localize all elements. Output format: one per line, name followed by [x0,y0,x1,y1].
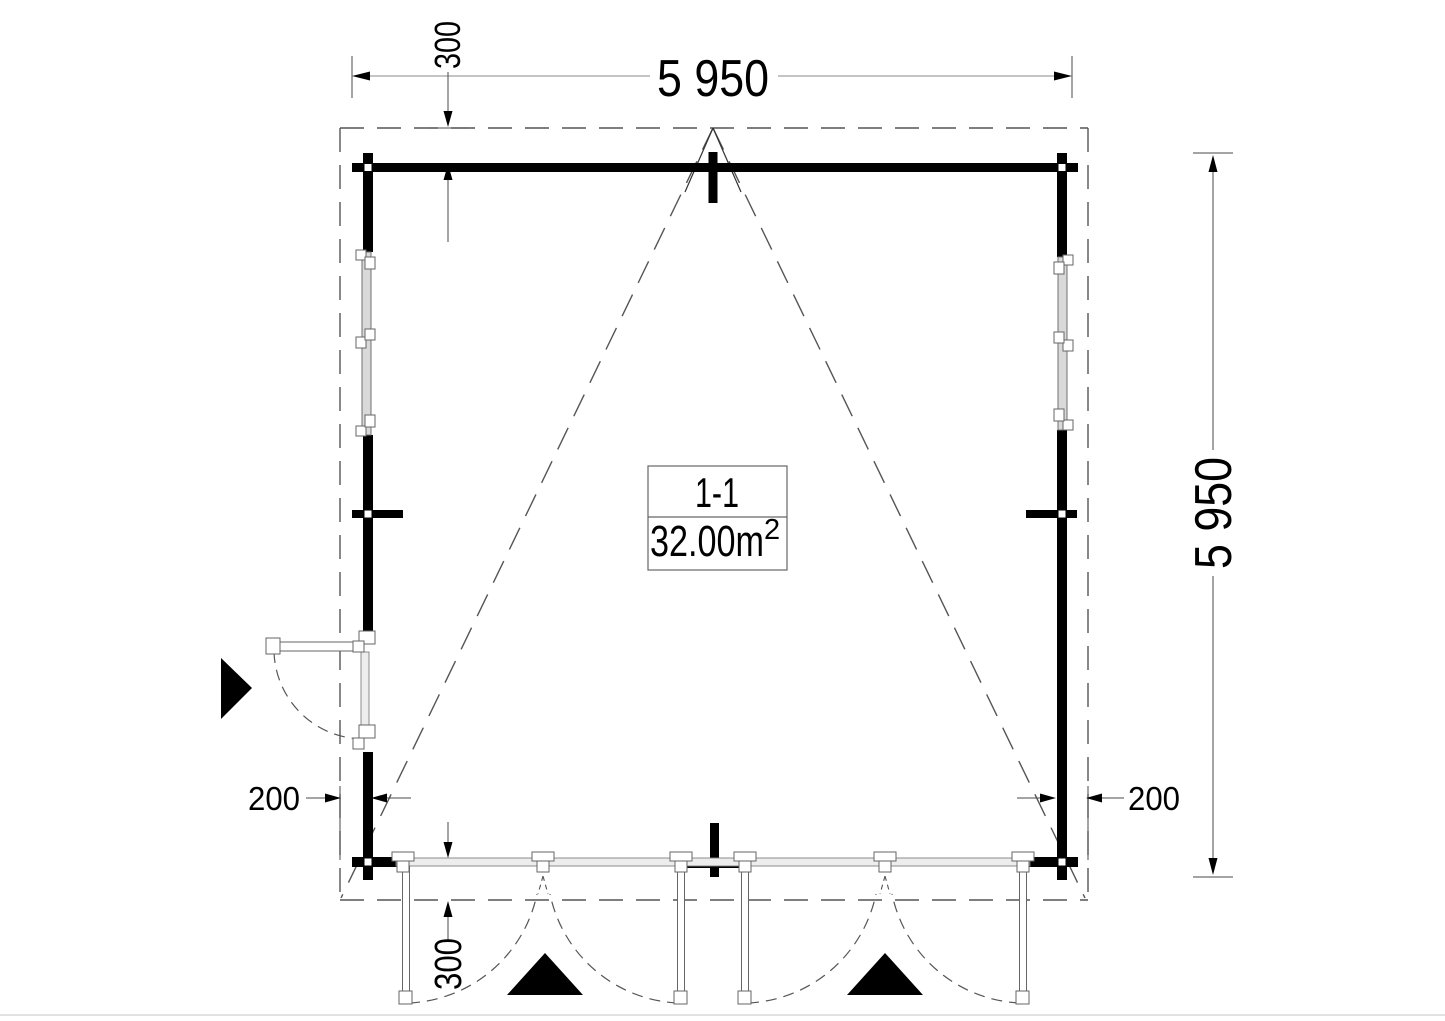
corner-notch-bottom-left [365,859,372,866]
door-closed-tip-mark [538,876,548,894]
dim-arrow [444,842,453,858]
door-leaf [678,866,685,993]
wall-left-middle [363,435,373,632]
dim-arrow [371,794,387,803]
dim-overhang-bottom: 300 [428,822,470,990]
dim-overhang-left: 200 [248,780,411,860]
corner-notch-bottom-right [1059,859,1066,866]
dim-overhang-left-label: 200 [248,780,300,817]
dim-overall-depth: 5 950 [1185,153,1243,877]
door-hinge-block [397,861,409,872]
entrance-arrow-bottom-right [847,953,923,995]
door-leaf-end-cap [399,991,412,1004]
side-door-jamb-block [359,725,375,738]
dim-overall-width-label: 5 950 [657,50,769,108]
side-door-leaf-end-cap [266,638,280,654]
door-hinge-block [739,861,751,872]
dim-arrow [444,901,453,917]
dim-arrow [1209,858,1218,875]
corner-notch-top-left [365,164,372,171]
door-threshold [396,858,1030,866]
door-hinge-block [532,852,554,861]
ridge-post-mark-top [709,152,718,203]
door-leaf-end-cap [674,991,687,1004]
door-hinge-block [1017,861,1029,872]
window-hinge-block [365,257,375,269]
entrance-arrow-bottom-left [507,953,583,995]
door-hinge-block [1012,852,1034,861]
side-door-opening [361,652,369,725]
dim-overall-depth-label: 5 950 [1185,457,1243,569]
joint-notch-right [1059,511,1066,518]
dim-arrow [1040,794,1056,803]
dim-arrow [1209,155,1218,172]
dim-overhang-bottom-label: 300 [428,938,470,990]
window-hinge-block [1054,409,1064,421]
corner-notch-top-right [1059,164,1066,171]
area-exponent: 2 [764,514,780,546]
window-hinge-block [1054,332,1064,343]
window-hinge-block [365,329,375,340]
dim-overhang-top-label: 300 [427,21,468,69]
door-leaf-end-cap [738,991,751,1004]
window-right [1054,255,1073,430]
wall-right-lower [1057,430,1067,880]
door-hinge-block [675,861,687,872]
floor-plan-drawing: 5 950 5 950 300 300 [0,0,1445,1021]
side-door-jamb-block [353,641,364,652]
section-area-label: 1-1 32.00m 2 [648,466,787,570]
dim-overhang-right: 200 [1017,780,1180,860]
door-closed-tip-mark [880,876,890,894]
dim-overhang-right-label: 200 [1128,780,1180,817]
section-label: 1-1 [695,469,739,516]
side-door [221,631,375,749]
window-hinge-block [1054,262,1064,274]
side-door-leaf [272,642,361,651]
door-leaf [742,866,749,993]
window-hinge-block [365,415,375,427]
wall-joint-tick-left [352,510,403,518]
door-hinge-block [874,852,896,861]
door-hinge-block [734,852,756,861]
wall-joint-tick-right [1026,510,1077,518]
door-hinge-block [879,861,891,872]
entrance-arrow-side [221,658,252,719]
door-hinge-block [670,852,692,861]
ridge-post-mark-bottom [710,823,719,877]
dim-arrow [1054,72,1072,81]
door-leaf [1020,866,1027,993]
door-hinge-block [537,861,549,872]
door-hinge-block [392,852,414,861]
dim-arrow [352,72,370,81]
dim-arrow [325,794,341,803]
dim-overhang-top: 300 [427,21,468,242]
door-leaf-end-cap [1016,991,1029,1004]
joint-notch-left [365,511,372,518]
window-left [356,250,375,436]
side-door-jamb-block [353,738,364,749]
area-value: 32.00m [650,517,764,566]
door-leaf [403,866,410,993]
dim-arrow [444,111,453,127]
wall-bottom-right-piece [1028,857,1078,867]
side-door-swing-arc [274,652,361,739]
